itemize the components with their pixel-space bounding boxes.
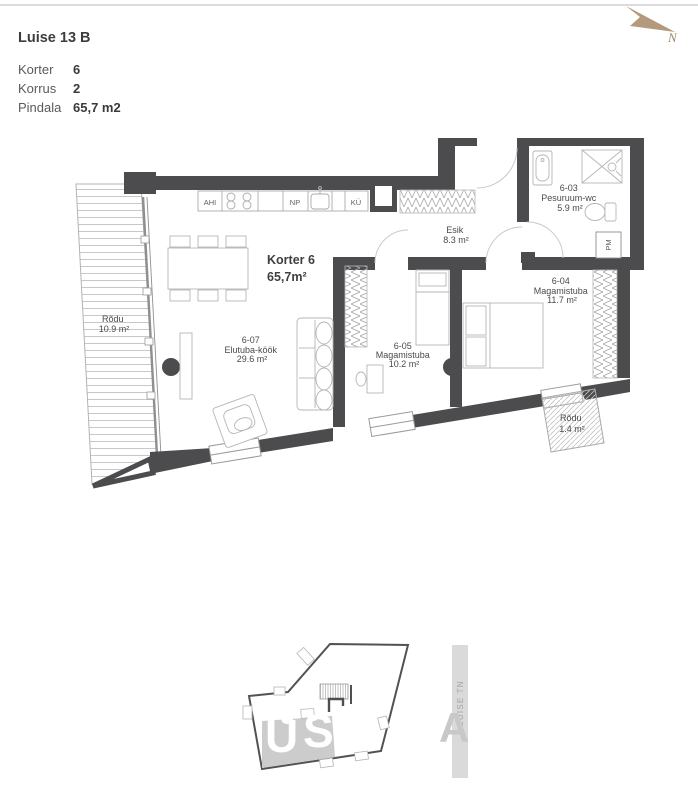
bed-604 xyxy=(463,303,543,368)
kitchen-label-ahi: AHI xyxy=(204,198,217,207)
north-arrow-icon xyxy=(626,6,675,32)
kitchen-label-np: NP xyxy=(290,198,300,207)
floorplan-drawing: N xyxy=(0,0,698,800)
windows xyxy=(209,384,583,464)
column xyxy=(162,358,180,376)
washing-machine-label: PM xyxy=(604,239,613,250)
sofa xyxy=(297,318,333,410)
site-plan: LUISE TN U S A xyxy=(243,644,469,778)
north-arrow: N xyxy=(626,6,678,45)
bathtub-icon xyxy=(533,151,552,185)
north-label: N xyxy=(667,30,678,45)
room-label-rodu-small: Rõdu 1.4 m² xyxy=(559,413,585,434)
dining-set xyxy=(168,236,248,301)
column xyxy=(443,358,461,376)
toilet-icon xyxy=(585,203,616,221)
kitchen-label-ku: KÜ xyxy=(351,198,361,207)
floorplan-page: Luise 13 B Korter 6 Korrus 2 Pindala 65,… xyxy=(0,0,698,800)
room-label-607: 6-07 Elutuba-köök 29.6 m² xyxy=(224,335,279,364)
wardrobe-bedroom-604 xyxy=(593,270,617,378)
desk-605 xyxy=(356,365,383,393)
watermark-letter: S xyxy=(303,705,334,757)
shaft xyxy=(375,186,392,206)
room-label-rodu-large: Rõdu 10.9 m² xyxy=(99,314,130,334)
bed-605 xyxy=(416,270,449,345)
watermark-letter: A xyxy=(439,704,469,751)
wardrobe-bedroom-605 xyxy=(345,266,367,347)
wardrobe-hallway xyxy=(400,190,475,213)
tv-bench xyxy=(180,333,192,399)
shower-icon xyxy=(582,150,622,183)
apartment-label: Korter 6 65,7m² xyxy=(267,253,318,284)
room-label-esik: Esik 8.3 m² xyxy=(443,225,469,245)
room-label-604: 6-04 Magamistuba 11.7 m² xyxy=(534,276,591,305)
washing-machine: PM xyxy=(596,232,621,258)
watermark-letter: U xyxy=(265,710,298,762)
kitchen-counter xyxy=(198,187,368,212)
